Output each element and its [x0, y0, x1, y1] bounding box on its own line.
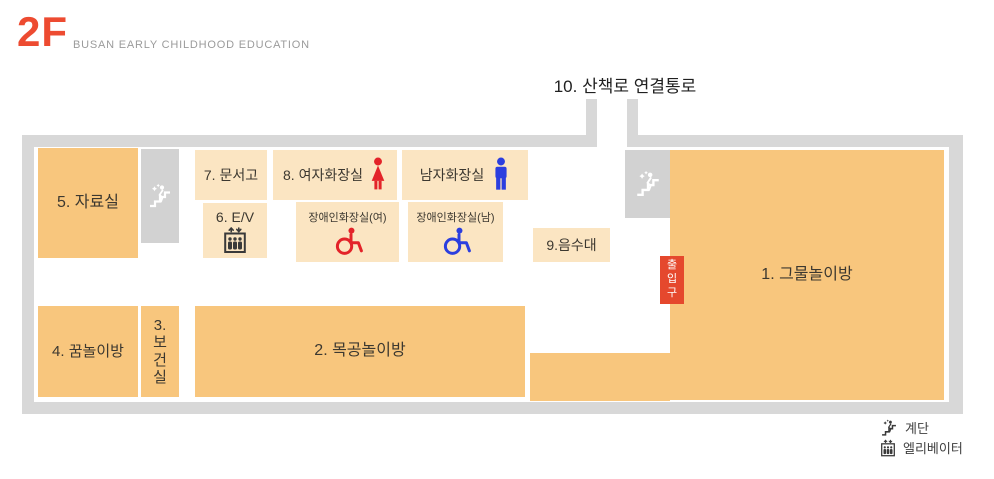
room-document-storage: 7. 문서고	[195, 150, 267, 200]
stairs-icon	[634, 170, 662, 198]
room-health-room: 3.보건실	[141, 306, 179, 397]
room-label: 4. 꿈놀이방	[52, 343, 124, 360]
stairs-icon	[147, 183, 173, 209]
legend-stairs: 계단	[880, 418, 929, 437]
room-label: 3.보건실	[150, 317, 170, 386]
room-reference-room: 5. 자료실	[38, 148, 138, 258]
floor-subtitle: BUSAN EARLY CHILDHOOD EDUCATION	[73, 39, 310, 51]
wall-left	[22, 135, 34, 414]
room-label: 8. 여자화장실	[283, 167, 363, 183]
room-elevator: 6. E/V	[203, 203, 267, 258]
room-label: 5. 자료실	[57, 194, 119, 212]
room-unlabeled-area	[530, 353, 670, 401]
wall-top-left	[22, 135, 597, 147]
room-label: 장애인화장실(남)	[416, 212, 494, 225]
room-label: 2. 목공놀이방	[314, 342, 405, 360]
elevator-icon	[880, 439, 896, 457]
corridor-label: 10. 산책로 연결통로	[500, 72, 750, 97]
room-accessible-restroom-men: 장애인화장실(남)	[408, 202, 503, 262]
floor-plan-page: 2F BUSAN EARLY CHILDHOOD EDUCATION 10. 산…	[0, 0, 994, 479]
room-net-play-room: 1. 그물놀이방	[670, 150, 944, 400]
stairs-area-left	[141, 149, 179, 243]
room-label: 7. 문서고	[204, 167, 258, 183]
entrance-badge: 출입구	[660, 256, 684, 304]
floor-label: 2F	[17, 8, 68, 56]
stairs-area-right	[625, 150, 670, 218]
room-drinking-fountain: 9.음수대	[533, 228, 610, 262]
room-womens-restroom: 8. 여자화장실	[273, 150, 397, 200]
legend-stairs-label: 계단	[905, 418, 929, 437]
entrance-label: 출입구	[666, 259, 678, 300]
wall-bottom	[22, 402, 963, 414]
stairs-icon	[880, 419, 898, 437]
room-woodwork-play-room: 2. 목공놀이방	[195, 306, 525, 397]
woman-icon	[369, 157, 387, 193]
wheelchair-icon	[441, 226, 471, 256]
room-dream-play-room: 4. 꿈놀이방	[38, 306, 138, 397]
room-accessible-restroom-women: 장애인화장실(여)	[296, 202, 399, 262]
room-label: 6. E/V	[216, 209, 254, 225]
legend-elevator: 엘리베이터	[880, 438, 963, 457]
elevator-icon	[223, 226, 247, 254]
legend-elevator-label: 엘리베이터	[903, 438, 963, 457]
corridor-wall-stub-right	[627, 99, 638, 137]
room-label: 장애인화장실(여)	[308, 212, 386, 225]
wheelchair-icon	[333, 226, 363, 256]
man-icon	[492, 157, 510, 193]
room-mens-restroom: 남자화장실	[402, 150, 528, 200]
wall-top-right	[627, 135, 963, 147]
corridor-wall-stub-left	[586, 99, 597, 137]
room-label: 1. 그물놀이방	[761, 266, 852, 284]
room-label: 남자화장실	[420, 167, 484, 183]
room-label: 9.음수대	[546, 237, 596, 253]
wall-right	[949, 135, 963, 414]
